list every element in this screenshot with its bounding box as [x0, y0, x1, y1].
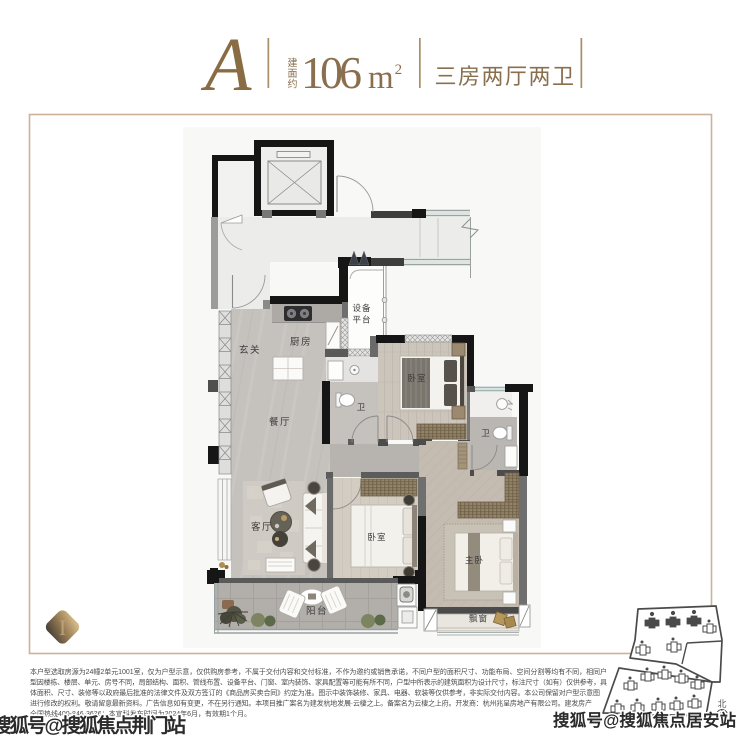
svg-text:型因楼栋、楼层、单元、房号不同，局部结构、面积、管线布置、设: 型因楼栋、楼层、单元、房号不同，局部结构、面积、管线布置、设备平台、门窗、室内装… — [30, 678, 607, 687]
svg-text:卫: 卫 — [357, 402, 367, 412]
svg-text:本户型选取房源为24幢2单元1001室，仅为户型示意，仅供购: 本户型选取房源为24幢2单元1001室，仅为户型示意，仅供购房参考，不属于交付内… — [30, 667, 607, 676]
svg-text:卧室: 卧室 — [367, 532, 386, 542]
svg-text:I: I — [59, 615, 66, 640]
svg-text:搜狐号@搜狐焦点居安站: 搜狐号@搜狐焦点居安站 — [553, 710, 737, 730]
svg-text:客厅: 客厅 — [251, 521, 273, 533]
svg-text:约: 约 — [288, 78, 298, 91]
svg-text:平台: 平台 — [352, 315, 371, 325]
svg-text:卧室: 卧室 — [407, 373, 426, 383]
svg-text:建: 建 — [288, 57, 298, 70]
svg-text:餐厅: 餐厅 — [269, 416, 291, 428]
svg-text:三房两厅两卫: 三房两厅两卫 — [434, 64, 575, 89]
svg-text:主卧: 主卧 — [465, 555, 484, 565]
svg-text:卫: 卫 — [481, 428, 491, 438]
svg-text:搜狐号@搜狐焦点荆门站: 搜狐号@搜狐焦点荆门站 — [0, 714, 187, 737]
svg-text:A: A — [200, 23, 252, 107]
svg-text:体面积、尺寸、装修等以政府最后批准的法律文件及双方签订的《商: 体面积、尺寸、装修等以政府最后批准的法律文件及双方签订的《商品房买卖合同》约定为… — [30, 688, 600, 697]
svg-text:设备: 设备 — [352, 303, 371, 313]
svg-text:飘窗: 飘窗 — [469, 614, 488, 624]
svg-text:阳台: 阳台 — [306, 605, 328, 617]
svg-text:进行修改的权利。敬请留意最新资料。广告信息如有变更，不在另行: 进行修改的权利。敬请留意最新资料。广告信息如有变更，不在另行通知。本项目推广案名… — [30, 699, 592, 708]
svg-text:玄关: 玄关 — [239, 344, 261, 356]
svg-text:北: 北 — [717, 699, 726, 709]
svg-text:面: 面 — [288, 69, 298, 80]
svg-text:厨房: 厨房 — [290, 336, 312, 348]
